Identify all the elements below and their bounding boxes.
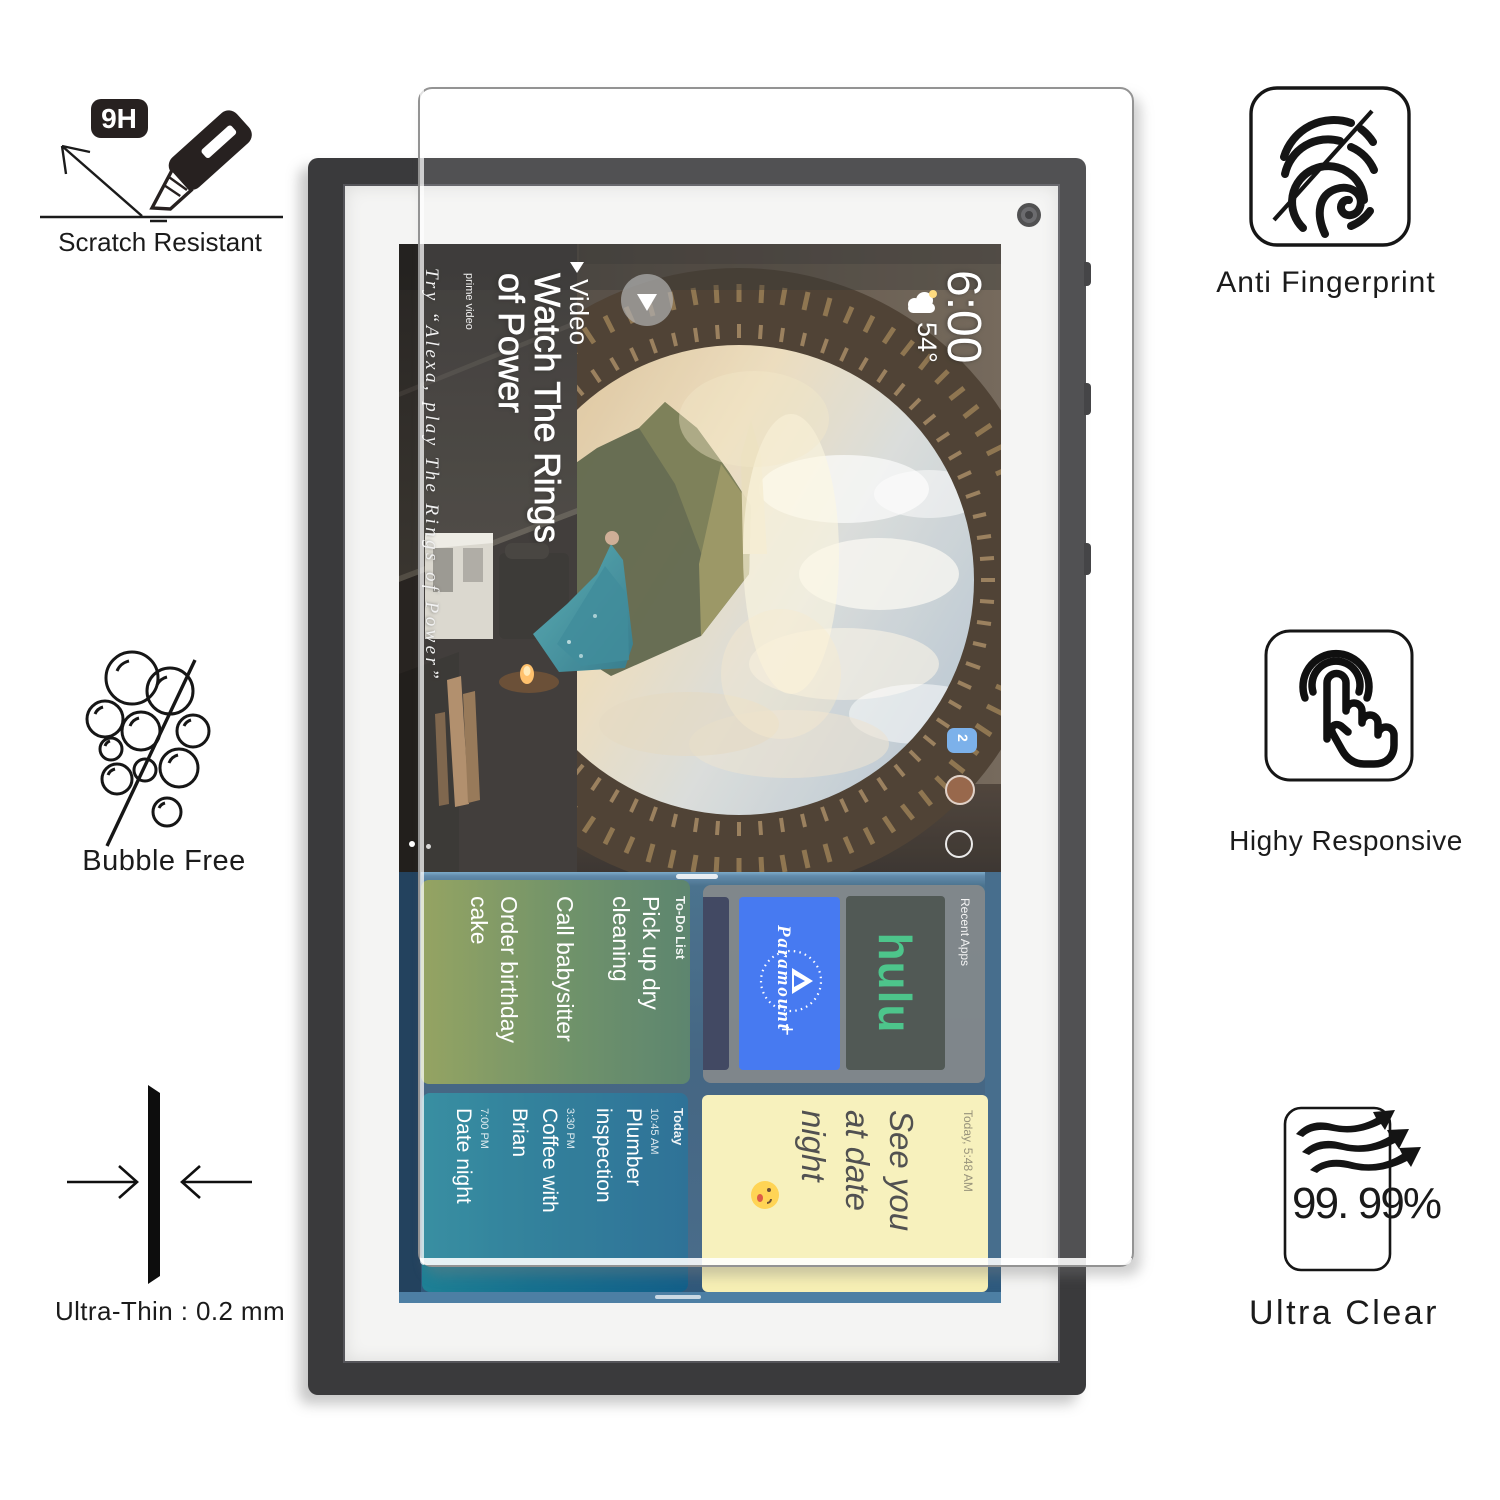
svg-text:9H: 9H — [101, 103, 137, 134]
svg-text:99. 99%: 99. 99% — [1292, 1179, 1442, 1228]
